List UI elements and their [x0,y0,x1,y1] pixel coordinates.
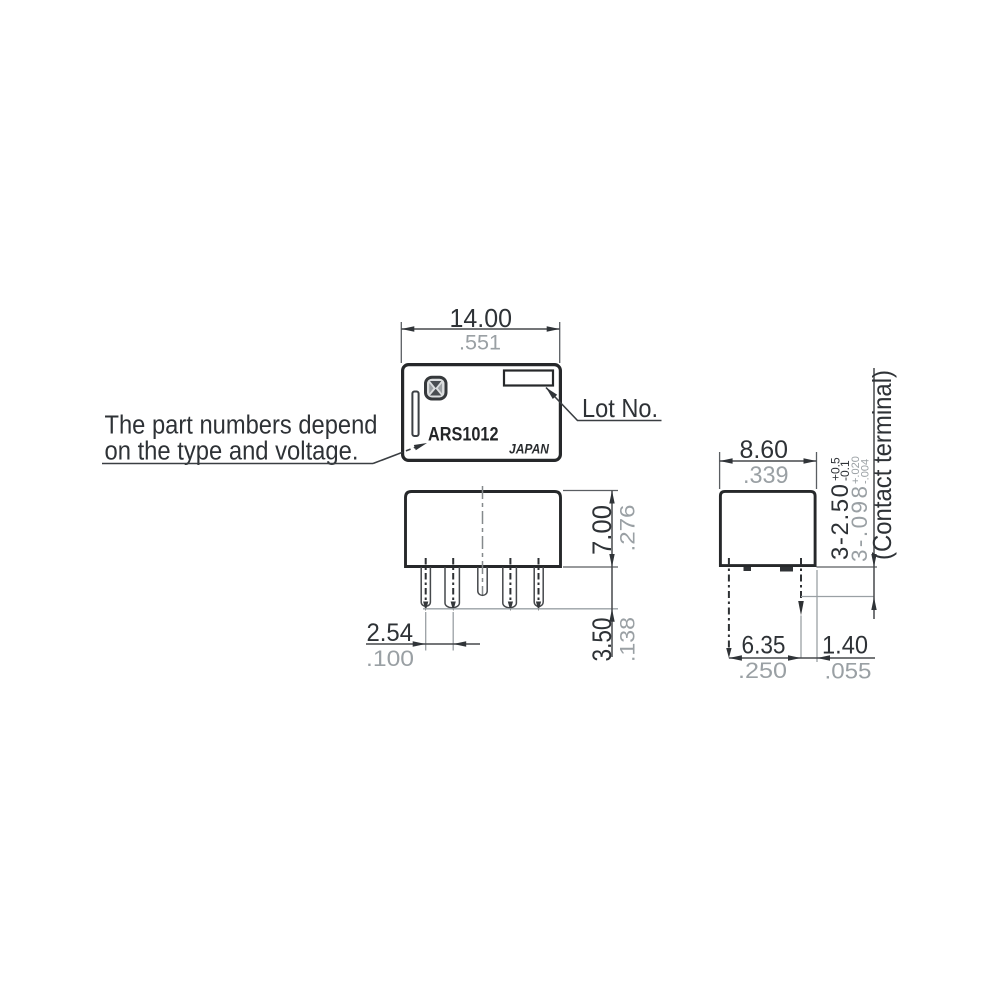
svg-text:.138: .138 [616,617,640,662]
svg-text:Lot No.: Lot No. [582,393,658,423]
svg-text:2.54: 2.54 [367,619,414,647]
svg-text:.250: .250 [738,658,787,683]
svg-text:.276: .276 [616,504,640,551]
svg-text:1.40: 1.40 [822,632,868,660]
svg-text:.100: .100 [366,646,414,671]
svg-text:7.00: 7.00 [587,505,617,555]
svg-text:JAPAN: JAPAN [509,441,549,456]
svg-text:.339: .339 [743,462,789,489]
svg-text:3.50: 3.50 [587,618,617,662]
svg-text:ARS1012: ARS1012 [428,424,499,445]
svg-text:.055: .055 [825,659,872,684]
svg-text:The part numbers depend: The part numbers depend [105,412,378,440]
svg-text:(Contact terminal): (Contact terminal) [867,370,897,560]
svg-text:on the type and voltage.: on the type and voltage. [105,438,359,466]
svg-text:.551: .551 [459,331,501,355]
svg-text:6.35: 6.35 [742,632,786,660]
svg-text:8.60: 8.60 [740,436,789,464]
svg-text:14.00: 14.00 [450,303,513,333]
